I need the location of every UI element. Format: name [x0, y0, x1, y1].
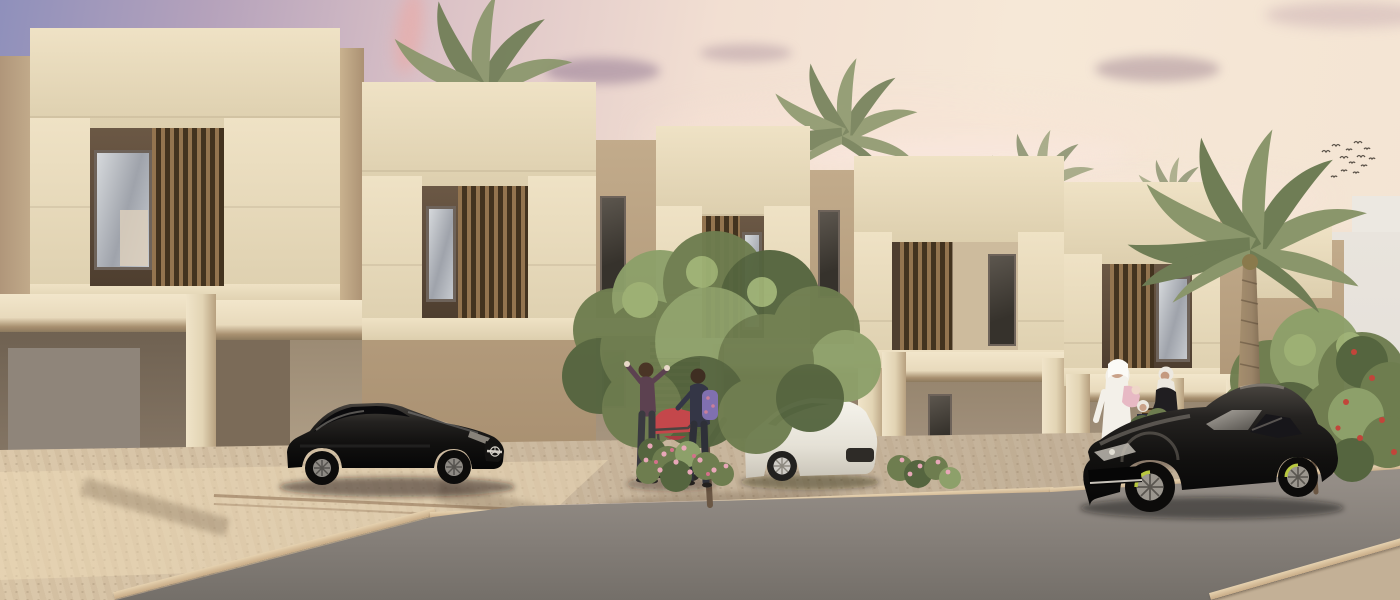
- foreground-layer: [0, 0, 1400, 600]
- flower-bush-right: [887, 455, 961, 489]
- black-sports-car: [279, 403, 515, 497]
- street-scene: [0, 0, 1400, 600]
